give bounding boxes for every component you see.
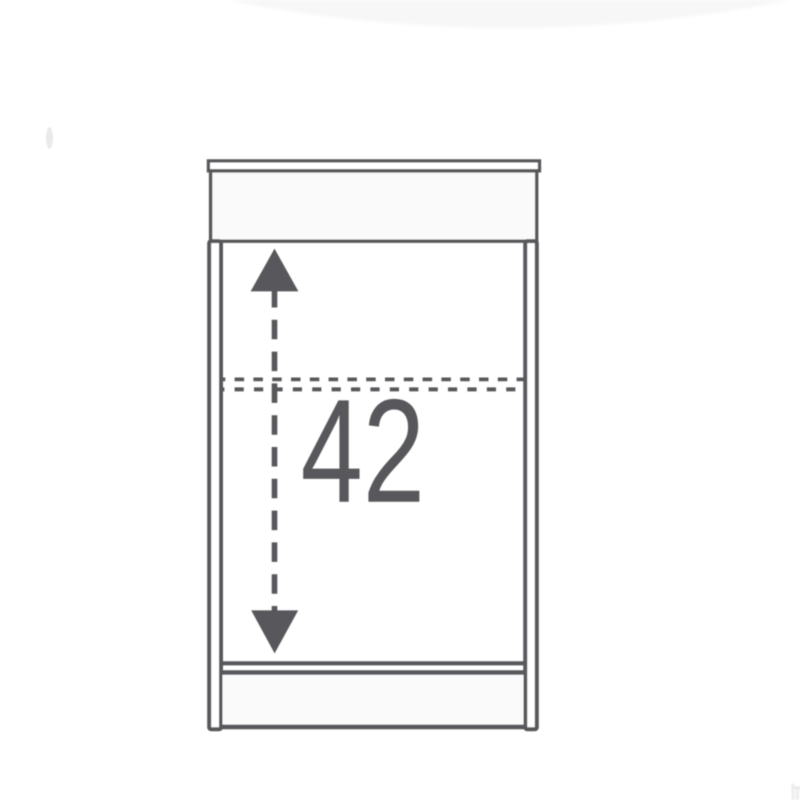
svg-text:42: 42 (301, 369, 425, 534)
